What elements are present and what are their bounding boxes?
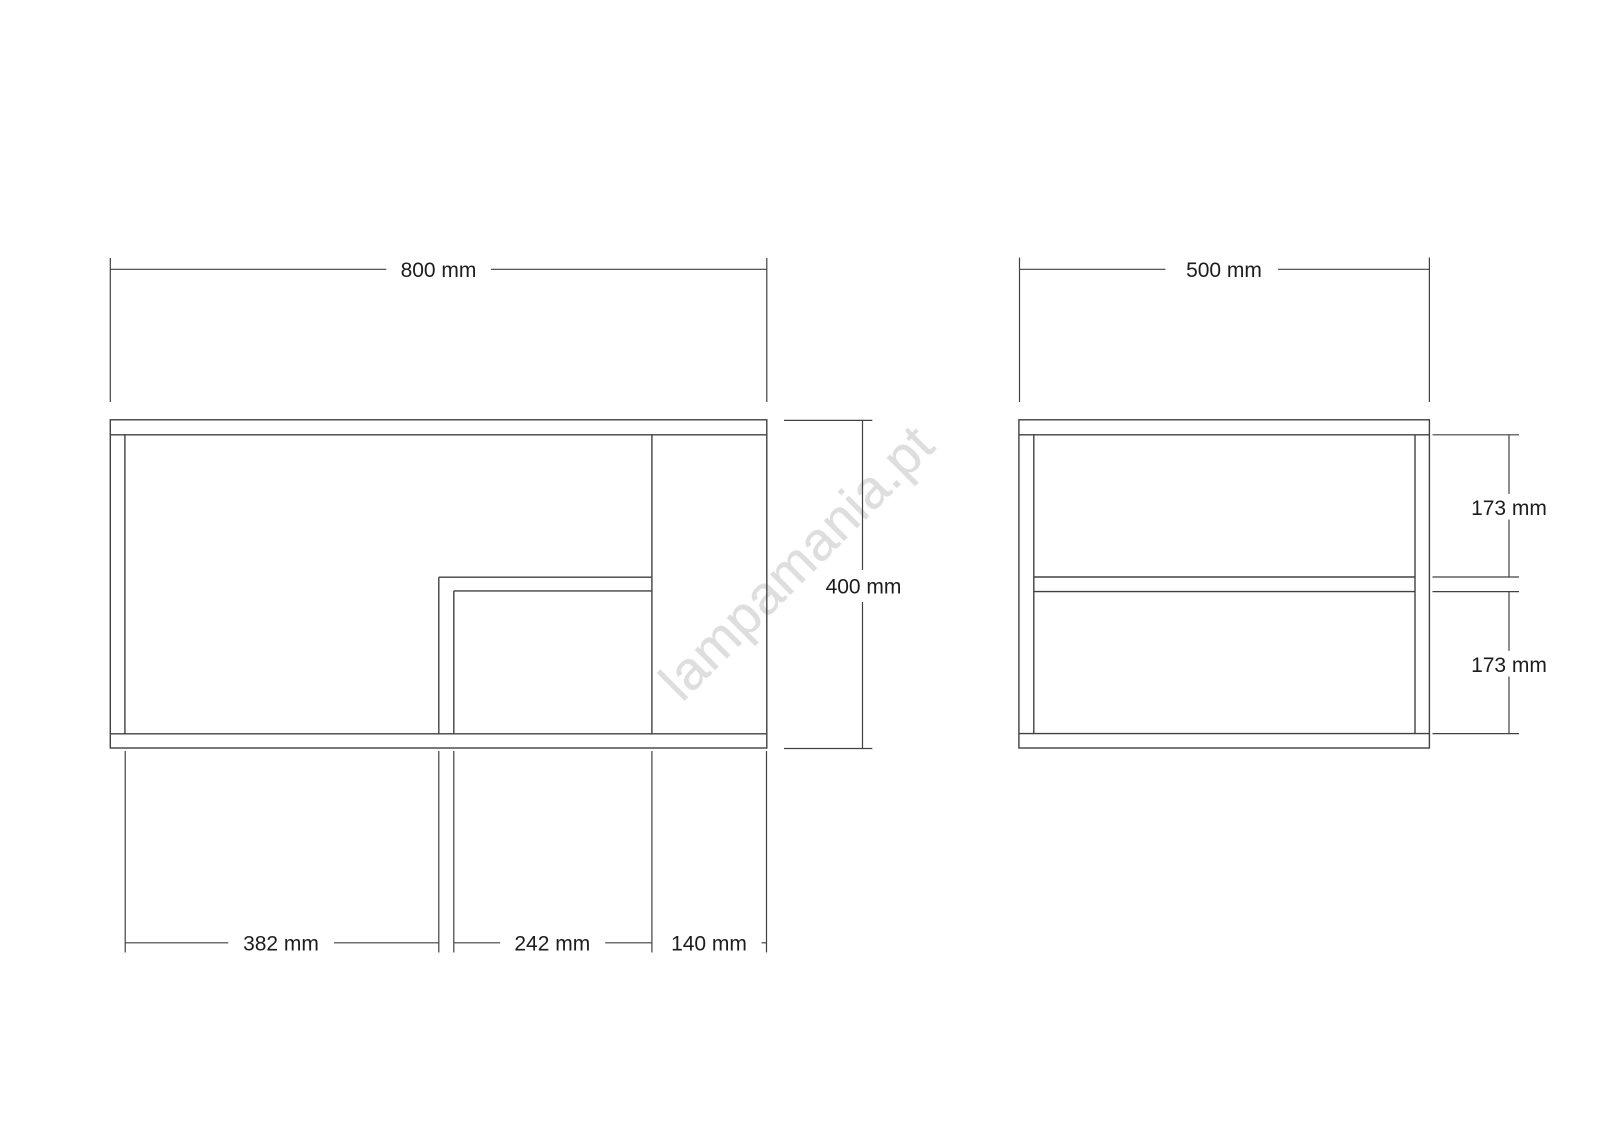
svg-text:500 mm: 500 mm: [1186, 259, 1262, 282]
svg-text:800 mm: 800 mm: [401, 259, 477, 282]
svg-text:382 mm: 382 mm: [243, 933, 319, 956]
svg-text:400 mm: 400 mm: [826, 576, 902, 599]
svg-text:140 mm: 140 mm: [671, 933, 747, 956]
svg-text:173 mm: 173 mm: [1471, 654, 1547, 677]
svg-text:242 mm: 242 mm: [514, 933, 590, 956]
svg-text:173 mm: 173 mm: [1471, 497, 1547, 520]
